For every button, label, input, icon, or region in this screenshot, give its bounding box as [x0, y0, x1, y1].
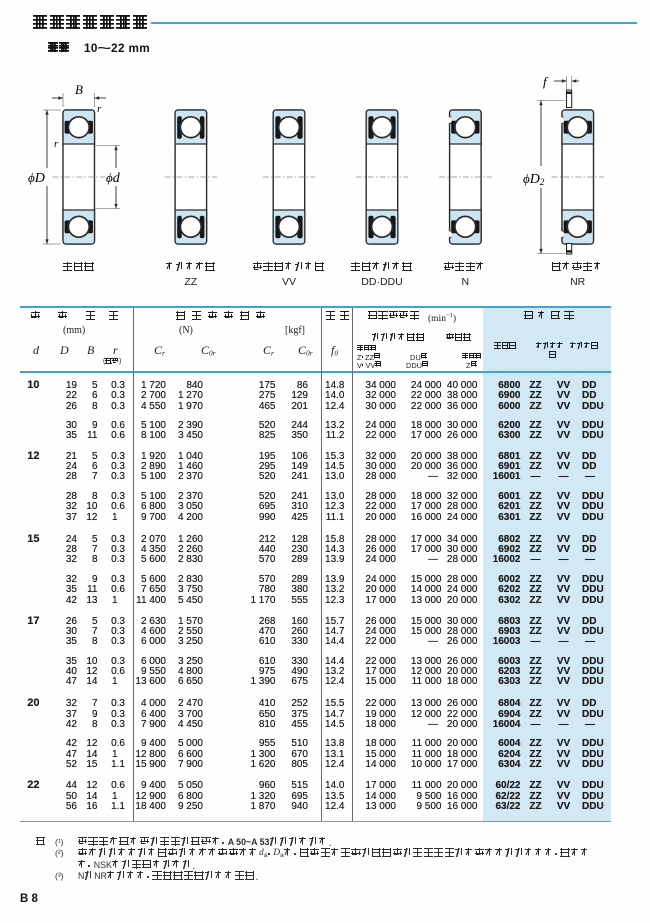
svg-text:ϕD2: ϕD2 — [523, 171, 545, 187]
svg-text:r: r — [54, 138, 59, 150]
svg-text:f: f — [543, 74, 549, 89]
svg-text:r: r — [97, 103, 102, 115]
svg-text:B: B — [75, 82, 83, 97]
svg-text:ϕD: ϕD — [28, 170, 45, 186]
svg-text:ϕd: ϕd — [106, 170, 121, 186]
